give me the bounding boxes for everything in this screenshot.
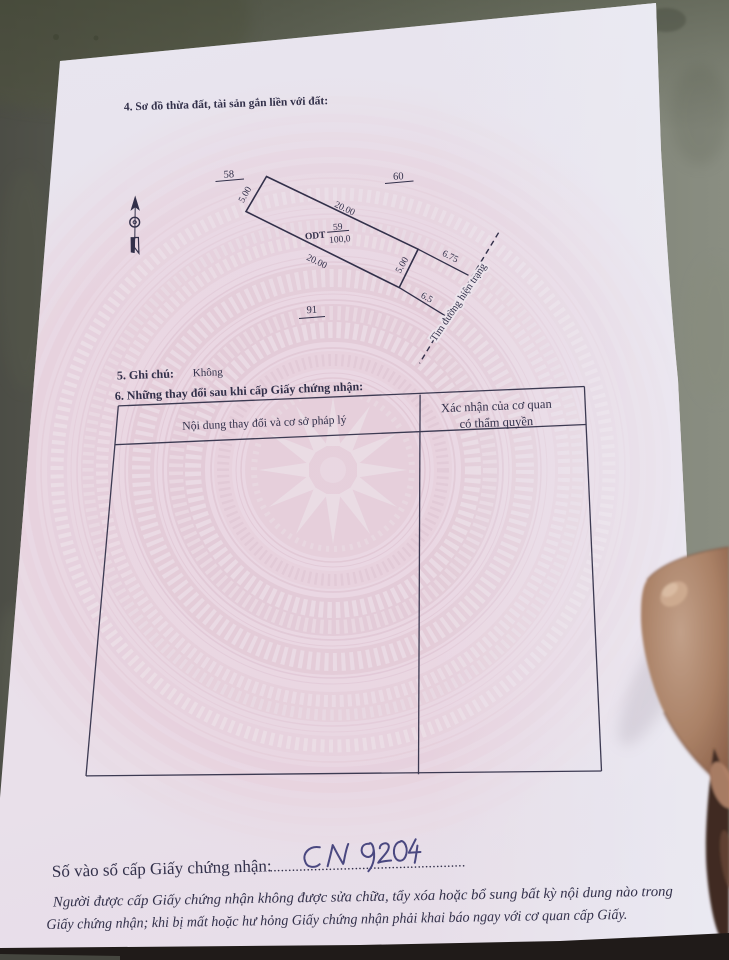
svg-text:Không: Không [193,366,224,379]
svg-text:91: 91 [306,305,317,317]
svg-text:58: 58 [223,169,234,181]
svg-text:5. Ghi chú:: 5. Ghi chú: [117,367,174,383]
svg-text:ODT: ODT [305,231,327,243]
svg-text:60: 60 [393,171,404,183]
svg-text:có thẩm quyền: có thẩm quyền [459,414,534,431]
svg-text:100,0: 100,0 [329,234,351,246]
